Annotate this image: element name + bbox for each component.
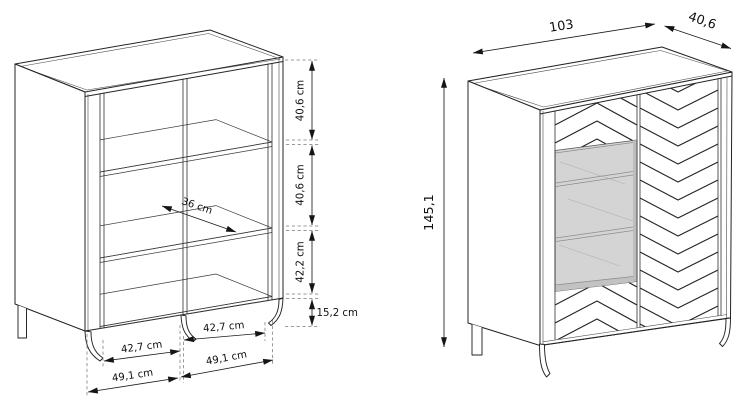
dimension-outer-width-right: 49,1 cm [181, 349, 273, 377]
dim-label-outer-width-right: 49,1 cm [205, 349, 248, 367]
dimension-outer-width-left: 49,1 cm [88, 368, 178, 392]
leg-back-left [472, 324, 482, 355]
leg-back-left [18, 305, 27, 338]
dim-label-inner-width-right: 42,7 cm [203, 320, 245, 335]
leg-front-left [540, 344, 551, 377]
dim-label-depth: 40,6 [686, 9, 718, 32]
diagram-canvas: 40,6 cm 40,6 cm 42,2 cm 15,2 cm 36 cm 42… [0, 0, 749, 403]
leg-front-right [720, 318, 731, 347]
left-view-open-cabinet: 40,6 cm 40,6 cm 42,2 cm 15,2 cm 36 cm 42… [15, 30, 358, 396]
dim-label-height: 145,1 [422, 194, 437, 231]
dim-label-outer-width-left: 49,1 cm [111, 368, 154, 385]
dimension-depth: 40,6 [665, 9, 732, 48]
shelf-middle-front [100, 228, 272, 263]
open-compartment-side-edge [633, 140, 637, 282]
dimension-top-section: 40,6 cm [296, 61, 313, 140]
dim-label-leg-height: 15,2 cm [317, 308, 359, 319]
dim-label-top-section: 40,6 cm [296, 80, 307, 122]
dimension-lower-section: 42,2 cm [296, 231, 313, 293]
vertical-partitions [100, 63, 272, 329]
dim-label-width: 103 [548, 17, 574, 36]
cabinet-outline [15, 30, 283, 332]
left-side-panel [468, 81, 540, 346]
dimension-inner-width-right: 42,7 cm [184, 320, 265, 340]
dim-label-inner-width-left: 42,7 cm [120, 339, 163, 355]
dimension-shelf-depth: 36 cm [162, 196, 236, 232]
leg-front-left [85, 331, 103, 361]
shelf-upper-front [100, 142, 272, 177]
dim-label-lower-section: 42,2 cm [296, 241, 307, 283]
open-compartment-panel [555, 140, 637, 292]
dim-label-middle-section: 40,6 cm [296, 164, 307, 206]
dimension-leg-height: 15,2 cm [312, 300, 358, 326]
leg-front-right [269, 298, 284, 326]
dimension-width: 103 [473, 17, 655, 53]
dimension-inner-width-left: 42,7 cm [104, 339, 180, 361]
dimension-middle-section: 40,6 cm [296, 146, 313, 226]
dimension-height: 145,1 [422, 78, 444, 347]
right-view-assembled-cabinet: 103 40,6 145,1 [422, 9, 732, 377]
left-side-panel [15, 64, 85, 331]
furniture-dimension-diagram: 40,6 cm 40,6 cm 42,2 cm 15,2 cm 36 cm 42… [0, 0, 749, 403]
open-compartment [555, 140, 637, 292]
